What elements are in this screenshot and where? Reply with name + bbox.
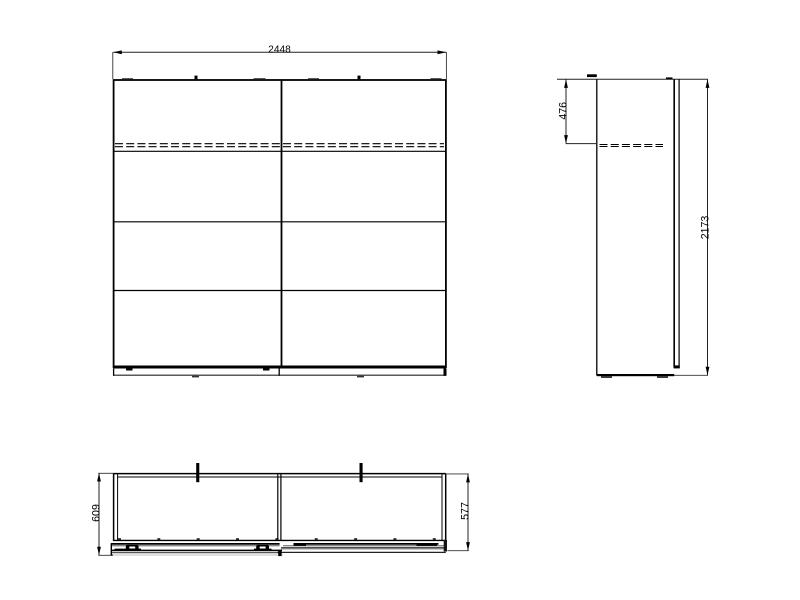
svg-text:609: 609 xyxy=(90,504,102,522)
svg-text:476: 476 xyxy=(557,102,569,120)
svg-text:577: 577 xyxy=(459,502,471,520)
svg-text:2173: 2173 xyxy=(699,216,711,240)
svg-text:2448: 2448 xyxy=(268,44,291,55)
